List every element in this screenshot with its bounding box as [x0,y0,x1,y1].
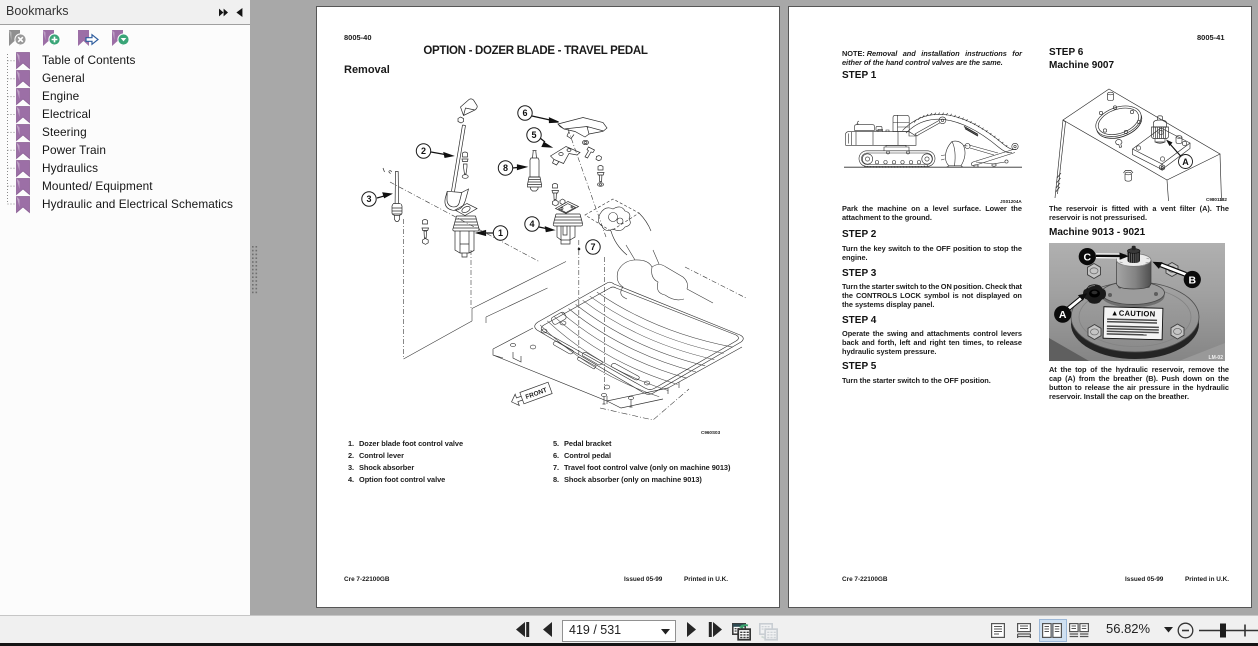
svg-text:6: 6 [522,108,527,118]
svg-text:1: 1 [498,228,503,238]
svg-text:7: 7 [590,242,595,252]
svg-text:A: A [1059,309,1067,321]
svg-text:A: A [1182,157,1189,167]
svg-text:8: 8 [503,163,508,173]
svg-text:▲CAUTION: ▲CAUTION [1111,308,1156,318]
svg-text:3: 3 [366,194,371,204]
svg-text:LM-02: LM-02 [1209,355,1224,361]
svg-text:B: B [1189,275,1197,287]
svg-text:5: 5 [531,130,536,140]
svg-text:4: 4 [529,219,534,229]
svg-text:2: 2 [421,146,426,156]
svg-text:C: C [1084,252,1092,264]
